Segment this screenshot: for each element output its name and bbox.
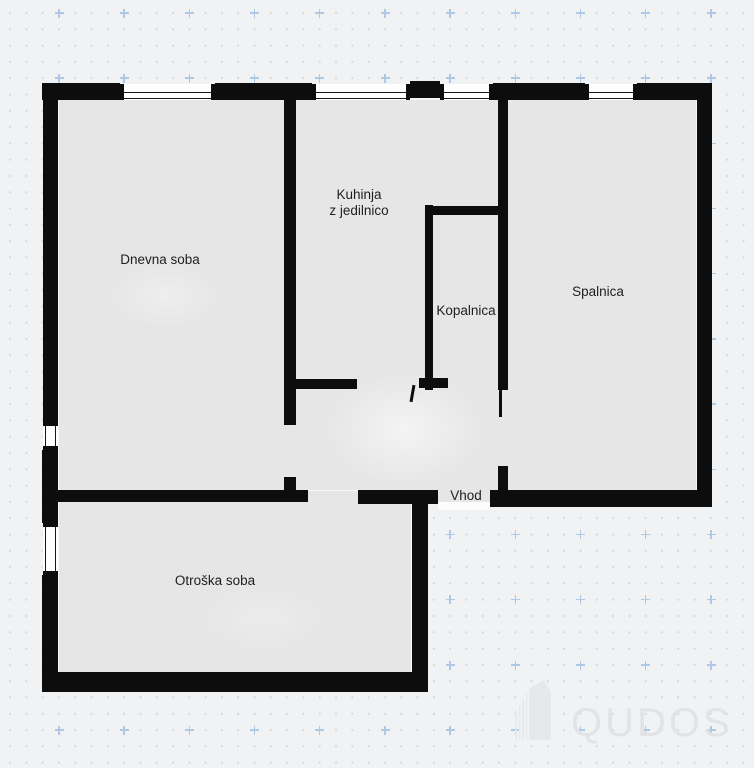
grid-plus-mark — [707, 661, 716, 670]
window-glass — [316, 92, 406, 99]
watermark-brand: QUDOS — [571, 701, 733, 745]
window-glass — [444, 92, 489, 99]
room-label-kitchen: Kuhinja z jedilnico — [329, 187, 388, 219]
room-label-living: Dnevna soba — [120, 252, 200, 268]
window-glass — [45, 426, 56, 446]
grid-plus-mark — [576, 74, 585, 83]
door-leaf-bedroom — [499, 390, 502, 417]
wall-bath-top — [425, 206, 507, 215]
grid-plus-mark — [446, 9, 455, 18]
watermark: QUDOS — [513, 678, 733, 745]
grid-plus-mark — [576, 530, 585, 539]
grid-plus-mark — [55, 74, 64, 83]
grid-plus-mark — [446, 726, 455, 735]
grid-plus-mark — [576, 595, 585, 604]
wall-top-3 — [410, 81, 440, 98]
grid-plus-mark — [446, 530, 455, 539]
room-label-entrance: Vhod — [450, 488, 482, 504]
wall-left-upper — [43, 83, 58, 422]
wall-hall-kids-corner — [358, 490, 438, 504]
grid-plus-mark — [185, 9, 194, 18]
grid-plus-mark — [55, 726, 64, 735]
grid-plus-mark — [707, 595, 716, 604]
room-label-kitchen-line2: z jedilnico — [329, 203, 388, 219]
wall-right — [697, 83, 712, 507]
window-top-3 — [440, 84, 493, 100]
grid-plus-mark — [315, 9, 324, 18]
grid-plus-mark — [511, 74, 520, 83]
grid-plus-mark — [511, 530, 520, 539]
grid-plus-mark — [641, 595, 650, 604]
room-label-kitchen-line1: Kuhinja — [329, 187, 388, 203]
grid-plus-mark — [55, 9, 64, 18]
grid-plus-mark — [315, 74, 324, 83]
grid-plus-mark — [120, 9, 129, 18]
room-label-kids: Otroška soba — [175, 573, 255, 589]
room-label-bedroom: Spalnica — [572, 284, 624, 300]
window-glass — [589, 92, 633, 99]
wall-kids-right — [412, 490, 428, 692]
grid-plus-mark — [707, 9, 716, 18]
wall-top-2 — [215, 83, 312, 100]
grid-plus-mark — [446, 661, 455, 670]
grid-plus-mark — [381, 9, 390, 18]
grid-plus-mark — [641, 74, 650, 83]
window-left-1 — [43, 422, 58, 450]
wall-bath-bottom — [419, 378, 448, 388]
wall-bedroom-left-lower — [498, 466, 508, 507]
wall-bedroom-bottom — [490, 490, 712, 507]
wall-living-door-stub — [284, 477, 296, 491]
building-icon — [513, 678, 565, 745]
grid-plus-mark — [641, 530, 650, 539]
wall-kitchen-bottom — [284, 379, 357, 389]
grid-plus-mark — [446, 595, 455, 604]
wall-top-4 — [493, 83, 585, 100]
room-label-bath: Kopalnica — [436, 303, 495, 319]
window-top-2 — [312, 84, 410, 100]
wall-left-mid — [42, 450, 58, 523]
window-left-2 — [43, 523, 58, 575]
window-top-1 — [120, 84, 215, 100]
grid-plus-mark — [576, 661, 585, 670]
wall-bath-left — [425, 205, 433, 390]
grid-plus-mark — [707, 74, 716, 83]
window-glass — [45, 527, 56, 571]
grid-plus-mark — [250, 9, 259, 18]
grid-plus-mark — [641, 661, 650, 670]
grid-plus-mark — [250, 726, 259, 735]
grid-plus-mark — [511, 9, 520, 18]
grid-plus-mark — [250, 74, 259, 83]
floor-plan: Dnevna soba Kuhinja z jedilnico Kopalnic… — [0, 0, 754, 768]
grid-plus-mark — [707, 530, 716, 539]
grid-plus-mark — [446, 74, 455, 83]
grid-plus-mark — [185, 74, 194, 83]
wall-living-kids-divider — [42, 490, 308, 502]
grid-plus-mark — [641, 9, 650, 18]
grid-plus-mark — [381, 74, 390, 83]
wall-living-kitchen-divider — [284, 99, 296, 425]
grid-plus-mark — [511, 661, 520, 670]
grid-plus-mark — [120, 726, 129, 735]
grid-plus-mark — [185, 726, 194, 735]
grid-plus-mark — [511, 595, 520, 604]
wall-bedroom-left-upper — [498, 99, 508, 390]
grid-plus-mark — [576, 9, 585, 18]
grid-plus-mark — [120, 74, 129, 83]
grid-plus-mark — [381, 726, 390, 735]
wall-kids-bottom — [42, 672, 417, 692]
grid-plus-mark — [315, 726, 324, 735]
window-top-4 — [585, 84, 637, 100]
window-glass — [124, 92, 211, 99]
